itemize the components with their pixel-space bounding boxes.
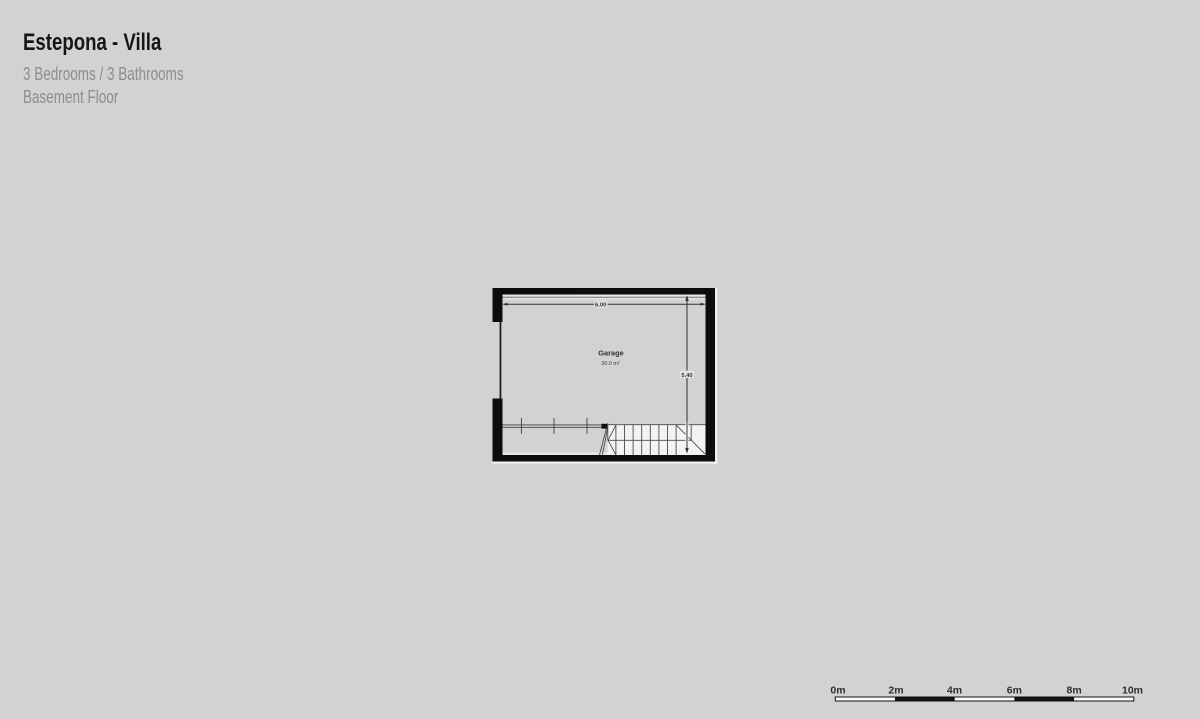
svg-text:6m: 6m <box>1007 685 1022 697</box>
svg-text:Garage: Garage <box>598 348 623 357</box>
svg-text:6.00: 6.00 <box>595 303 606 309</box>
svg-text:10m: 10m <box>1122 685 1143 697</box>
svg-text:2m: 2m <box>888 685 903 697</box>
svg-text:0m: 0m <box>830 685 845 697</box>
svg-text:30.0 m²: 30.0 m² <box>601 361 619 367</box>
svg-text:8m: 8m <box>1067 685 1082 697</box>
svg-text:4m: 4m <box>947 685 962 697</box>
svg-text:5.40: 5.40 <box>681 373 692 379</box>
